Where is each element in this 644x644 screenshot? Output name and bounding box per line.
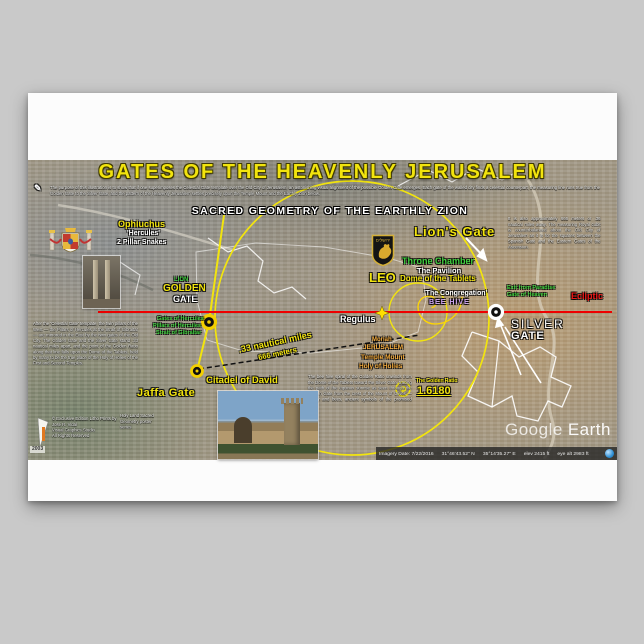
intro-paragraph: The purpose of this illustration is to s… bbox=[50, 186, 600, 197]
label-holy-of-holies: Holy of Holies bbox=[359, 364, 402, 371]
label-gates-of-hercules: Gates of Hercules bbox=[157, 317, 204, 323]
screenshot-canvas: Φ GATES OF THE HEAVENLY JERUSALEM ✎ The … bbox=[0, 0, 644, 644]
label-pillars-of-hercules: Pillars of Hercules bbox=[153, 324, 201, 330]
jerusalem-lion-emblem: ירושלים bbox=[371, 234, 395, 267]
imagery-date: Imagery Date: 7/22/2016 bbox=[379, 451, 434, 457]
label-golden-gate: GOLDEN bbox=[163, 284, 206, 295]
status-bar-text: Imagery Date: 7/22/201631°46'43.52" N35°… bbox=[379, 447, 617, 460]
label-ophiuchus: Ophiuchus bbox=[118, 220, 165, 229]
label-jerusalem: JERUSALEM bbox=[363, 345, 403, 352]
label-citadel-of-david: Citadel of David bbox=[206, 376, 278, 386]
label-bee-hive: BEE HIVE bbox=[429, 299, 470, 306]
label-golden-gate-word: GATE bbox=[173, 295, 197, 304]
citadel-photo-inset bbox=[218, 391, 318, 459]
label-regulus: Regulus bbox=[340, 315, 376, 324]
right-note-paragraph: It is also approximately 666 meters or .… bbox=[508, 217, 601, 251]
photo-pillar bbox=[105, 260, 110, 300]
google-wordmark: Google bbox=[505, 420, 563, 439]
center-note-paragraph: The bee hive spiral of the Golden Ratio … bbox=[308, 375, 412, 409]
spanish-coat-of-arms bbox=[48, 226, 93, 254]
pen-icon: ✎ bbox=[34, 184, 42, 193]
publisher-logo bbox=[36, 417, 50, 449]
poster-title: GATES OF THE HEAVENLY JERUSALEM bbox=[30, 161, 615, 184]
copyright-stamp: 2003 bbox=[30, 446, 45, 453]
label-strait-of-gibraltar: Strait of Gibraltar bbox=[156, 331, 201, 337]
earth-wordmark: Earth bbox=[568, 420, 611, 439]
label-moriah: Moriah bbox=[372, 337, 392, 343]
credit-line: All Rights Reserved bbox=[52, 434, 133, 440]
elevation: elev 2415 ft bbox=[524, 451, 550, 457]
label-golden-ratio-value: 1.6180 bbox=[417, 386, 451, 398]
leo-constellation-lines bbox=[492, 341, 499, 407]
citadel-marker bbox=[192, 366, 203, 377]
latitude: 31°46'43.52" N bbox=[442, 451, 475, 457]
pillars-photo-inset bbox=[83, 256, 120, 308]
label-silver-gate-word: GATE bbox=[511, 331, 545, 343]
series-note: Holy Land Sacred Geometry poster series bbox=[120, 414, 158, 431]
label-exit-paradise: Exit from Paradise bbox=[507, 286, 555, 292]
label-jaffa-gate: Jaffa Gate bbox=[137, 388, 195, 400]
label-ecliptic: Ecliptic bbox=[571, 292, 603, 301]
eye-altitude: eye alt 2983 ft bbox=[557, 451, 588, 457]
label-golden-ratio: The Golden Ratio bbox=[416, 379, 457, 384]
google-earth-watermark: GoogleEarth bbox=[505, 420, 611, 440]
photo-wall bbox=[218, 421, 318, 431]
label-gate-of-heaven: Gate of Heaven bbox=[507, 293, 547, 299]
label-silver: SILVER bbox=[511, 318, 565, 331]
regulus-star bbox=[375, 306, 389, 320]
status-bar: Imagery Date: 7/22/201631°46'43.52" N35°… bbox=[376, 447, 617, 460]
photo-tower bbox=[284, 403, 300, 445]
label-temple-mount: Temple Mount bbox=[361, 355, 405, 362]
poster-subtitle: SACRED GEOMETRY OF THE EARTHLY ZION bbox=[180, 205, 480, 217]
label-pillar-snakes: 2 Pillar Snakes bbox=[117, 239, 166, 246]
label-hercules: 'Hercules' bbox=[127, 230, 160, 237]
label-dome-of-tablets: Dome of the Tablets bbox=[400, 275, 476, 283]
hebrew-jerusalem-text: ירושלים bbox=[376, 238, 391, 243]
label-leo: LEO bbox=[369, 271, 396, 285]
globe-icon bbox=[605, 449, 614, 458]
silver-gate-marker bbox=[490, 306, 503, 319]
photo-gate-arch bbox=[234, 417, 252, 443]
longitude: 35°14'35.27" E bbox=[483, 451, 516, 457]
golden-gate-marker bbox=[203, 316, 216, 329]
label-congregation: 'The Congregation' bbox=[424, 290, 487, 297]
photo-base bbox=[83, 299, 120, 308]
label-lions-gate: Lion's Gate bbox=[414, 225, 495, 239]
left-note-paragraph: After the 'Celestial Gate' template, the… bbox=[33, 322, 138, 367]
photo-pillar bbox=[93, 260, 98, 300]
